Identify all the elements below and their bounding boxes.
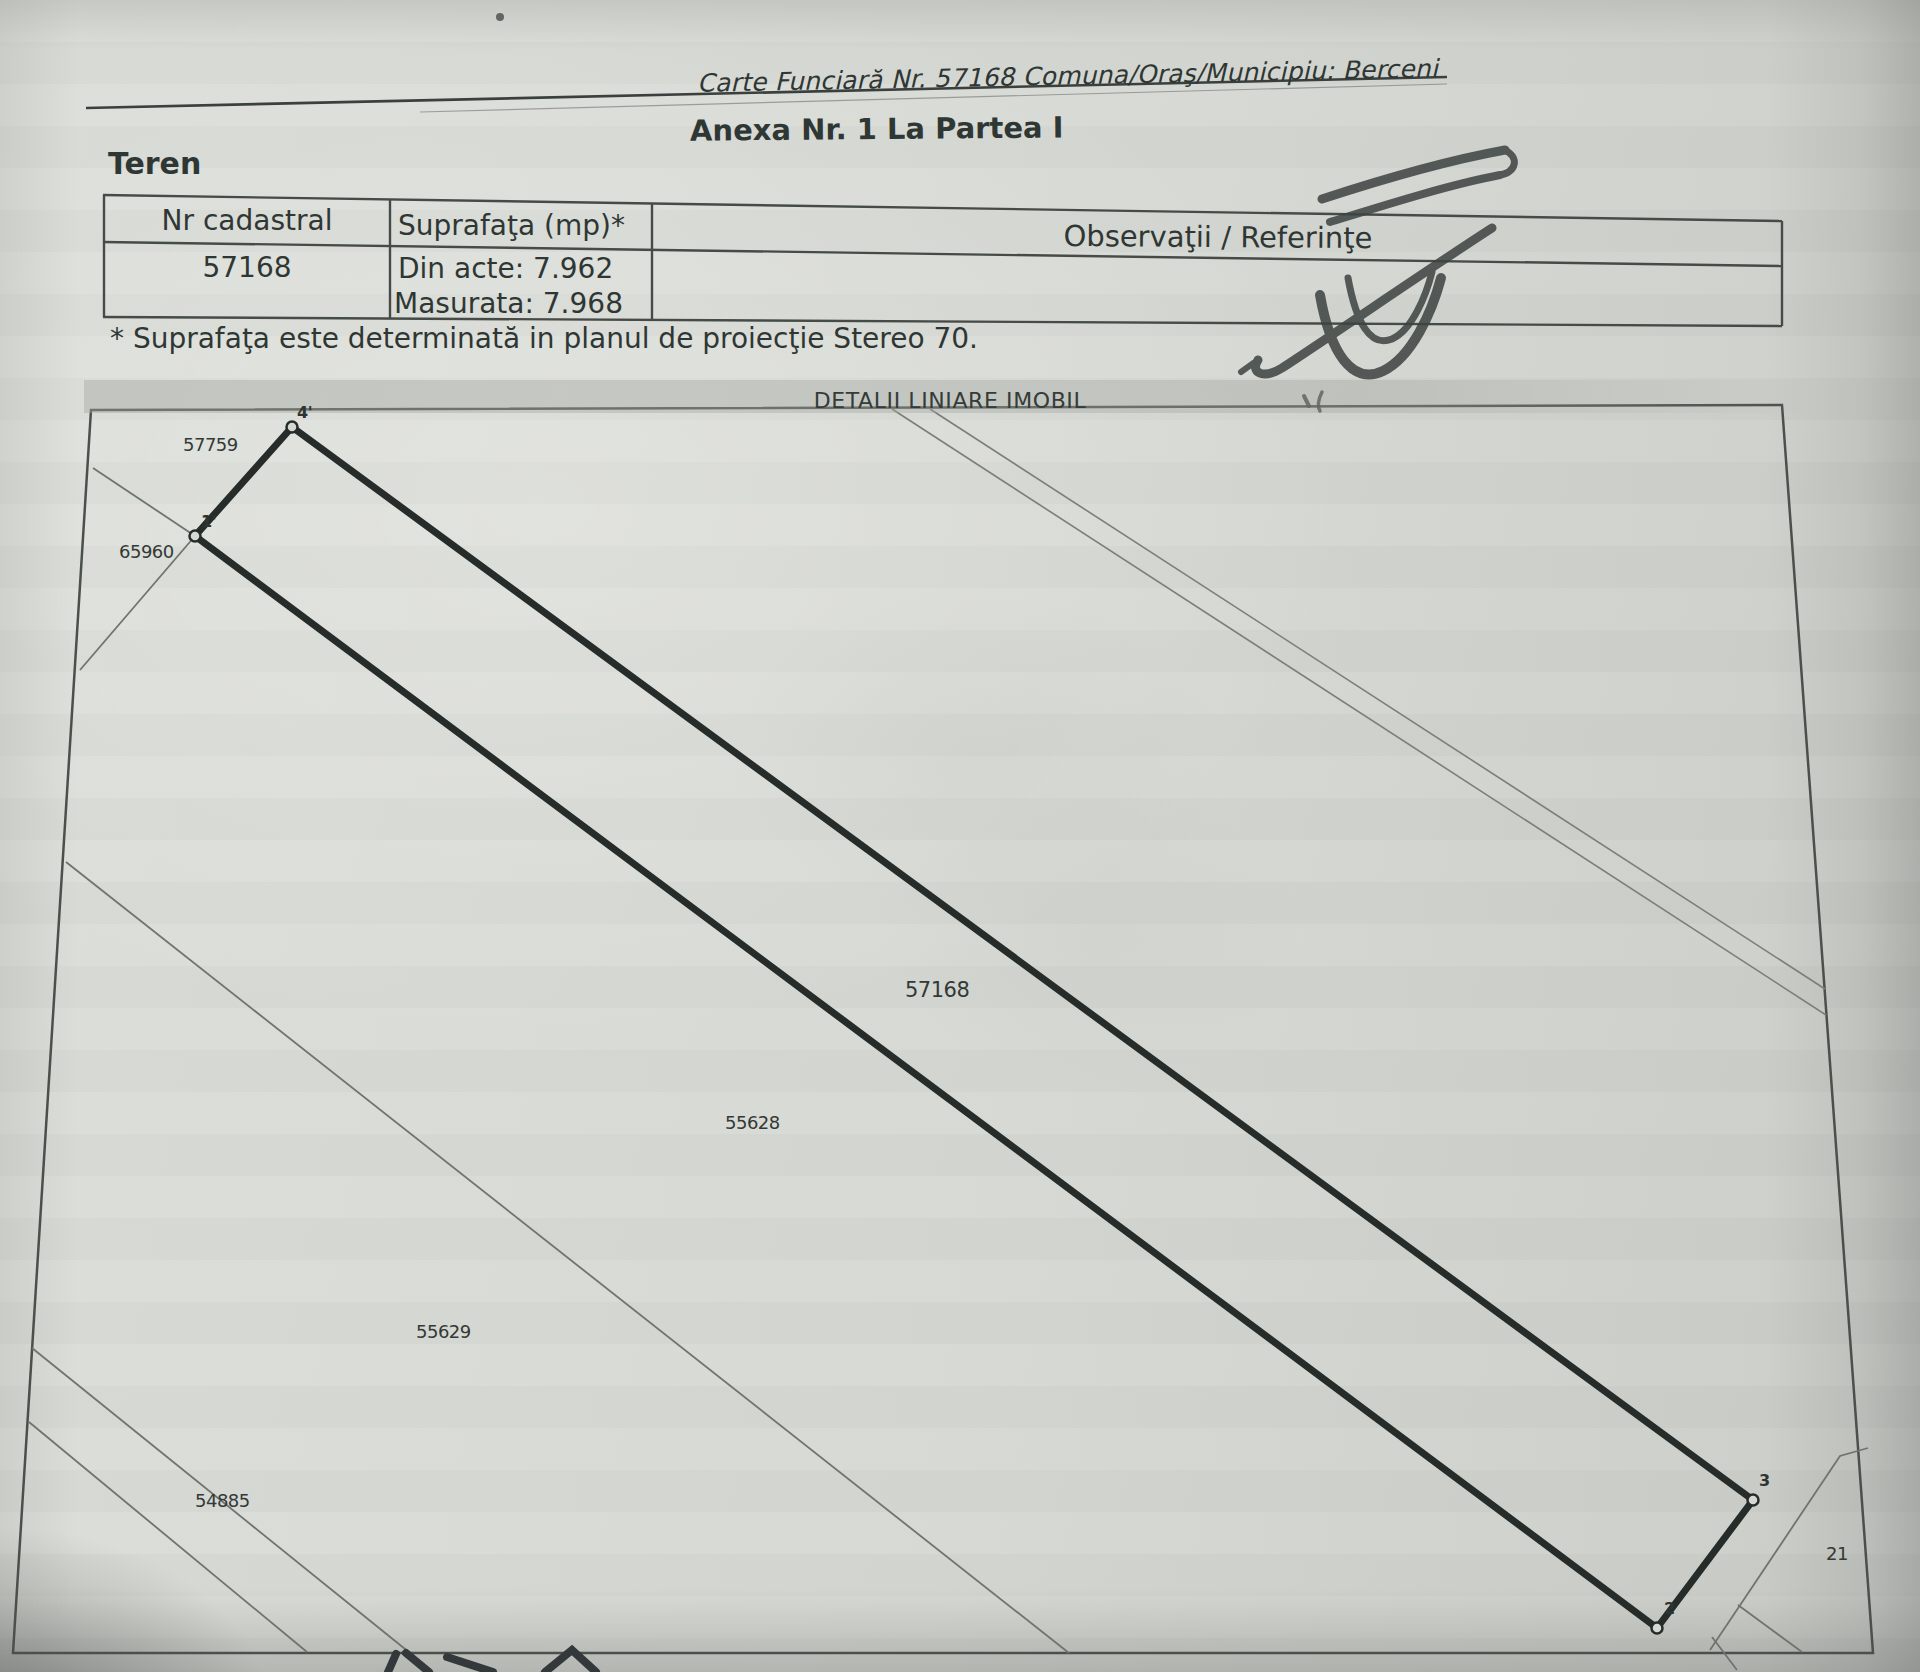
point-label-4prime: 4' (297, 403, 312, 422)
table-header-nr-cadastral: Nr cadastral (104, 204, 390, 237)
point-label-2: 2 (1664, 1599, 1675, 1618)
road-double-line (892, 409, 1826, 1015)
table-header-suprafata: Suprafaţa (mp)* (398, 209, 625, 242)
table-cell-din-acte: Din acte: 7.962 (398, 252, 613, 285)
table-cell-nr-cadastral: 57168 (104, 251, 390, 284)
parcel-label-21: 21 (1826, 1543, 1848, 1564)
signature-scribble (1241, 150, 1514, 411)
plan-title: DETALII LINIARE IMOBIL (750, 388, 1150, 413)
footnote: * Suprafaţa este determinată in planul d… (110, 322, 978, 355)
parcel-label-65960: 65960 (119, 541, 174, 562)
ink-speck (496, 13, 504, 21)
parcel-label-55629: 55629 (416, 1321, 471, 1342)
parcel-label-57759: 57759 (183, 434, 238, 455)
scanned-document-page: Carte Funciară Nr. 57168 Comuna/Oraş/Mun… (0, 0, 1920, 1672)
parcel-57168-outline (195, 427, 1753, 1628)
plan-border (13, 405, 1873, 1653)
table-cell-masurata: Masurata: 7.968 (394, 287, 623, 320)
section-title-teren: Teren (108, 146, 201, 181)
corner-point-markers (190, 422, 1759, 1634)
anexa-title: Anexa Nr. 1 La Partea I (690, 110, 1064, 147)
parcel-label-55628: 55628 (725, 1112, 780, 1133)
table-header-observatii: Observaţii / Referinţe (1035, 219, 1401, 256)
parcel-boundary-lines (29, 468, 1868, 1670)
parcel-label-54885: 54885 (195, 1490, 250, 1511)
point-label-3: 3 (1759, 1471, 1770, 1490)
parcel-label-57168: 57168 (905, 978, 969, 1002)
point-label-1prime: 1' (201, 512, 216, 531)
